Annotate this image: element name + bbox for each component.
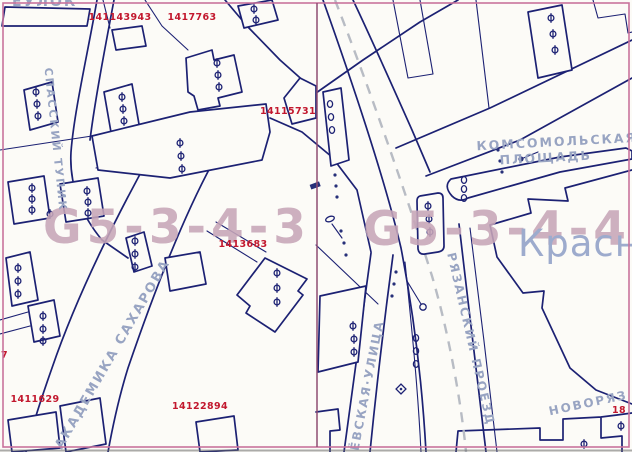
parcel-line xyxy=(145,0,188,50)
building-outline xyxy=(284,78,316,124)
building-outline xyxy=(165,252,206,291)
building-outline xyxy=(8,412,60,452)
street-akademika-sakharova: АКАДЕМИКА САХАРОВА xyxy=(52,257,173,452)
cadastral-number: 14115731 xyxy=(260,106,316,117)
building-outline xyxy=(318,286,366,372)
map-canvas[interactable]: G5-3-4-3 G5-3-4-4 Красн ЕУЛОК СПАССКИЙ Т… xyxy=(0,0,632,452)
parcel-line xyxy=(476,0,489,108)
parcel-line xyxy=(316,0,458,93)
building-outline xyxy=(323,88,349,166)
cadastral-number-partial: 7 xyxy=(1,350,8,361)
area-label-krasn: Красн xyxy=(518,222,632,265)
cadastral-number: 1411629 xyxy=(10,394,59,405)
street-ryazansky-proezd: РЯЗАНСКИЙ ПРОЕЗД xyxy=(444,251,498,427)
proezd-road-right-upper xyxy=(353,0,430,172)
cadastral-number-partial: 18 xyxy=(612,405,626,416)
cadastral-number: 1417763 xyxy=(167,12,216,23)
building-outline xyxy=(6,252,38,306)
building-outline xyxy=(238,0,278,28)
cadastral-number: 14122894 xyxy=(172,401,228,412)
building-outline xyxy=(112,26,146,50)
building-steps xyxy=(316,409,340,452)
parcel-line xyxy=(0,136,92,150)
leader-line xyxy=(0,312,30,334)
sheet-code-left: G5-3-4-3 xyxy=(43,200,311,255)
cadastral-map: G5-3-4-3 G5-3-4-4 Красн ЕУЛОК СПАССКИЙ Т… xyxy=(0,0,632,452)
building-outline xyxy=(186,50,242,110)
building-outline xyxy=(28,300,60,342)
building-outline xyxy=(237,258,307,332)
cadastral-number: 141143943 xyxy=(88,12,151,23)
building-corner xyxy=(593,0,632,33)
parcel-line xyxy=(393,0,433,78)
street-pereulok-partial: ЕУЛОК xyxy=(12,0,77,10)
cadastral-number: 1413683 xyxy=(218,239,267,250)
